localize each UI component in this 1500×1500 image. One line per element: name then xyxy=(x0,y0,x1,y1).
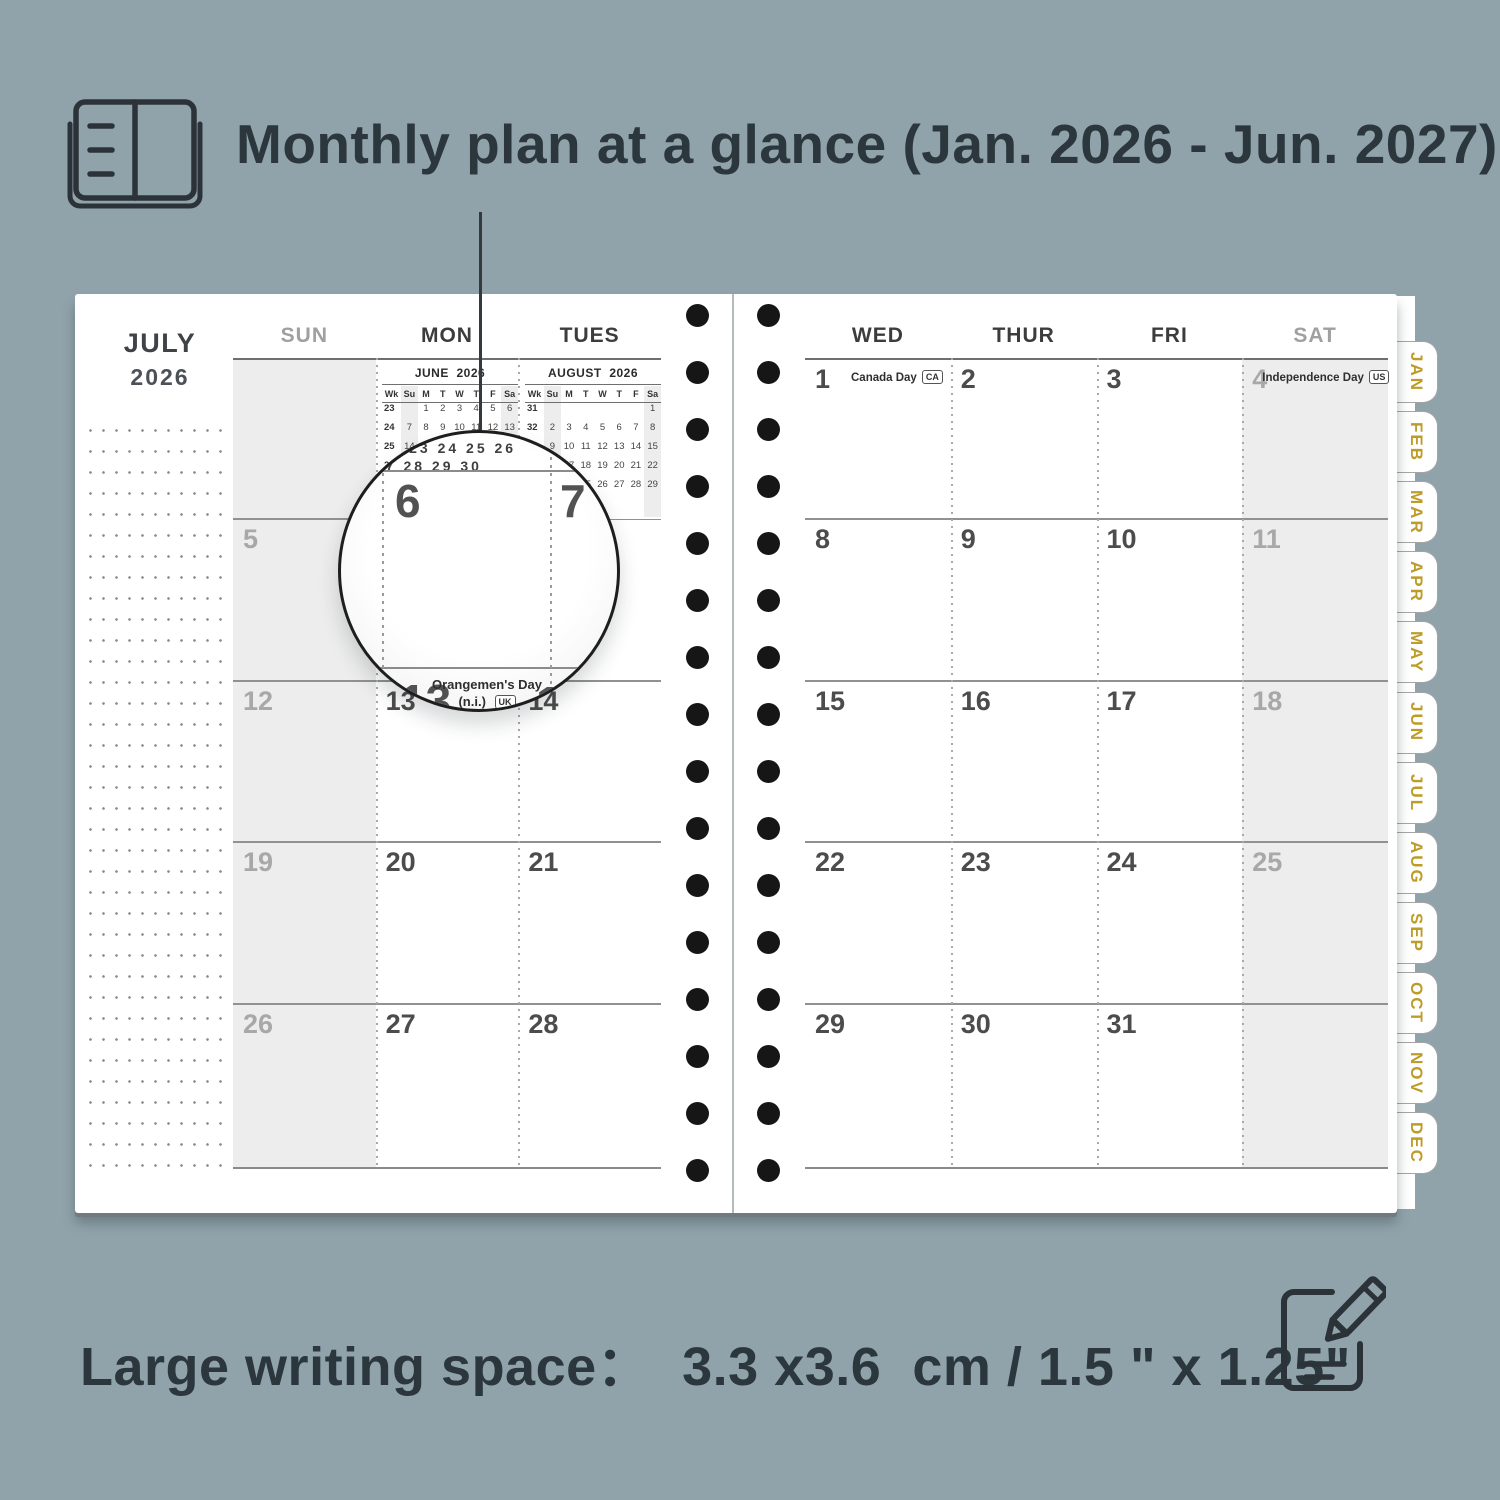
mini-col-header: Sa xyxy=(501,389,518,399)
day-cell-28: 28 xyxy=(528,1011,558,1038)
mini-col-header: F xyxy=(628,389,645,399)
mini-day: 26 xyxy=(594,479,611,490)
mini-week-number: 24 xyxy=(382,422,401,433)
mini-day: 13 xyxy=(611,441,628,452)
holiday-label: Independence DayUS xyxy=(1262,370,1389,384)
month-tab-nov: NOV xyxy=(1395,1042,1438,1104)
mini-line xyxy=(525,384,661,385)
mini-day: 10 xyxy=(561,441,578,452)
magnified-column-divider xyxy=(382,433,384,712)
binding-hole xyxy=(757,1102,780,1125)
day-cell-12: 12 xyxy=(243,688,273,715)
day-cell-27: 27 xyxy=(386,1011,416,1038)
grid-row-line xyxy=(805,1167,1388,1169)
day-cell-8: 8 xyxy=(815,526,830,553)
magnified-column-divider xyxy=(550,433,552,712)
day-cell-22: 22 xyxy=(815,849,845,876)
mini-day: 2 xyxy=(434,403,451,414)
day-header-mon: MON xyxy=(376,324,519,348)
binding-hole xyxy=(757,931,780,954)
mini-col-header: M xyxy=(418,389,435,399)
holiday-name: Orangemen's Day xyxy=(432,677,542,692)
mini-day: 8 xyxy=(418,422,435,433)
day-cell-11: 11 xyxy=(1252,526,1281,553)
month-tab-jul: JUL xyxy=(1395,762,1438,824)
mini-col-header: Sa xyxy=(644,389,661,399)
month-tab-label: OCT xyxy=(1395,973,1437,1033)
grid-row-line xyxy=(233,358,661,360)
planner-product-image: Monthly plan at a glance (Jan. 2026 - Ju… xyxy=(0,0,1500,1500)
binding-hole xyxy=(757,1159,780,1182)
day-cell-24: 24 xyxy=(1107,849,1137,876)
mini-day: 22 xyxy=(644,460,661,471)
mini-line xyxy=(382,384,518,385)
grid-column-divider xyxy=(951,358,953,1167)
month-tab-label: JAN xyxy=(1395,342,1437,402)
mini-col-header: Su xyxy=(401,389,418,399)
mini-day: 12 xyxy=(594,441,611,452)
day-cell-1: 1 xyxy=(815,366,830,393)
grid-column-divider xyxy=(1097,358,1099,1167)
binding-hole xyxy=(686,532,709,555)
binding-hole xyxy=(757,475,780,498)
binding-hole xyxy=(757,646,780,669)
day-cell-26: 26 xyxy=(243,1011,273,1038)
binding-hole xyxy=(757,361,780,384)
binding-hole xyxy=(686,760,709,783)
writing-pencil-icon xyxy=(1268,1268,1386,1400)
day-cell-2: 2 xyxy=(961,366,976,393)
mini-col-header: Wk xyxy=(525,389,544,399)
mini-col-header: T xyxy=(468,389,485,399)
holiday-name: Independence Day xyxy=(1262,372,1364,384)
binding-hole xyxy=(757,589,780,612)
mini-col-header: T xyxy=(434,389,451,399)
month-tab-aug: AUG xyxy=(1395,832,1438,894)
mini-col-header: M xyxy=(561,389,578,399)
binding-hole xyxy=(686,646,709,669)
mini-day: 2 xyxy=(544,422,561,433)
mini-day: 15 xyxy=(644,441,661,452)
month-tab-may: MAY xyxy=(1395,621,1438,683)
day-header-wed: WED xyxy=(805,324,951,348)
binding-hole xyxy=(757,703,780,726)
binding-hole xyxy=(757,817,780,840)
mini-day: 4 xyxy=(577,422,594,433)
binding-hole xyxy=(757,988,780,1011)
holiday-label: Canada DayCA xyxy=(851,370,943,384)
month-tab-label: DEC xyxy=(1395,1113,1437,1173)
day-header-sat: SAT xyxy=(1242,324,1388,348)
binding-hole xyxy=(686,1045,709,1068)
month-tab-jan: JAN xyxy=(1395,341,1438,403)
day-cell-19: 19 xyxy=(243,849,273,876)
mini-day: 5 xyxy=(594,422,611,433)
day-cell-25: 25 xyxy=(1252,849,1282,876)
mini-calendar-title: AUGUST 2026 xyxy=(525,366,661,380)
mini-day: 29 xyxy=(644,479,661,490)
mini-line xyxy=(525,402,661,403)
year-title: 2026 xyxy=(85,364,235,391)
country-badge: US xyxy=(1369,370,1390,384)
binding-hole xyxy=(686,589,709,612)
month-tab-label: APR xyxy=(1395,552,1437,612)
binding-hole xyxy=(686,475,709,498)
weekend-column-shade xyxy=(233,358,376,1167)
binding-hole xyxy=(686,931,709,954)
month-tab-jun: JUN xyxy=(1395,692,1438,754)
binding-hole xyxy=(686,1159,709,1182)
day-cell-20: 20 xyxy=(386,849,416,876)
center-fold-line xyxy=(732,294,734,1213)
binding-hole xyxy=(686,418,709,441)
binding-hole xyxy=(686,874,709,897)
mini-col-header: T xyxy=(611,389,628,399)
month-tab-oct: OCT xyxy=(1395,972,1438,1034)
mini-day: 5 xyxy=(485,403,502,414)
binding-hole xyxy=(757,1045,780,1068)
callout-leader-line xyxy=(479,212,482,436)
day-cell-16: 16 xyxy=(961,688,991,715)
day-cell-3: 3 xyxy=(1107,366,1122,393)
mini-col-header: Wk xyxy=(382,389,401,399)
mini-col-header: F xyxy=(485,389,502,399)
mini-day: 9 xyxy=(434,422,451,433)
binding-hole xyxy=(686,361,709,384)
month-tab-label: MAY xyxy=(1395,622,1437,682)
day-cell-18: 18 xyxy=(1252,688,1282,715)
mini-day: 3 xyxy=(561,422,578,433)
spread: JULY 2026 SUNMONTUES56712131419202126272… xyxy=(75,294,1397,1213)
binding-hole xyxy=(686,703,709,726)
grid-row-line xyxy=(233,1003,661,1005)
mini-col-header: T xyxy=(577,389,594,399)
binding-hole xyxy=(757,760,780,783)
page-title: Monthly plan at a glance (Jan. 2026 - Ju… xyxy=(236,112,1498,176)
month-tab-label: JUN xyxy=(1395,693,1437,753)
month-tab-label: MAR xyxy=(1395,482,1437,542)
mini-week-number: 31 xyxy=(525,403,544,414)
binding-hole xyxy=(686,304,709,327)
magnified-day-7: 7 xyxy=(560,478,586,524)
grid-row-line xyxy=(233,1167,661,1169)
magnified-day-6: 6 xyxy=(395,478,421,524)
day-header-thur: THUR xyxy=(951,324,1097,348)
day-header-fri: FRI xyxy=(1097,324,1243,348)
mini-col-header: Su xyxy=(544,389,561,399)
mini-col-header: W xyxy=(594,389,611,399)
month-tab-label: AUG xyxy=(1395,833,1437,893)
day-header-sun: SUN xyxy=(233,324,376,348)
mini-day: 8 xyxy=(644,422,661,433)
binding-hole xyxy=(757,532,780,555)
mini-day: 27 xyxy=(611,479,628,490)
day-cell-30: 30 xyxy=(961,1011,991,1038)
month-title: JULY xyxy=(85,328,235,359)
month-tab-label: SEP xyxy=(1395,903,1437,963)
weekend-column-shade xyxy=(1242,358,1388,1167)
mini-day: 11 xyxy=(577,441,594,452)
mini-day: 1 xyxy=(644,403,661,414)
open-planner-icon xyxy=(64,94,206,212)
binding-hole xyxy=(757,874,780,897)
mini-calendar-title: JUNE 2026 xyxy=(382,366,518,380)
month-tab-label: JUL xyxy=(1395,763,1437,823)
mini-day: 3 xyxy=(451,403,468,414)
writing-space-caption: Large writing space： 3.3 x3.6 cm / 1.5 "… xyxy=(80,1322,1351,1401)
notes-dot-grid xyxy=(84,420,227,1168)
mini-day: 14 xyxy=(628,441,645,452)
mini-day: 7 xyxy=(401,422,418,433)
month-tab-feb: FEB xyxy=(1395,411,1438,473)
mini-day: 28 xyxy=(628,479,645,490)
binding-hole xyxy=(757,418,780,441)
month-tab-mar: MAR xyxy=(1395,481,1438,543)
month-tab-dec: DEC xyxy=(1395,1112,1438,1174)
mini-day: 7 xyxy=(628,422,645,433)
country-badge: CA xyxy=(922,370,943,384)
day-cell-10: 10 xyxy=(1107,526,1137,553)
binding-hole xyxy=(757,304,780,327)
day-header-tues: TUES xyxy=(518,324,661,348)
mini-day: 4 xyxy=(468,403,485,414)
binding-hole xyxy=(686,1102,709,1125)
country-badge: UK xyxy=(495,695,516,709)
day-cell-23: 23 xyxy=(961,849,991,876)
holiday-name: Canada Day xyxy=(851,372,917,384)
day-cell-21: 21 xyxy=(528,849,558,876)
mini-day: 1 xyxy=(418,403,435,414)
magnified-holiday-label: Orangemen's Day (n.i.) UK xyxy=(422,676,552,710)
month-tab-label: FEB xyxy=(1395,412,1437,472)
grid-column-divider xyxy=(1242,358,1244,1167)
mini-week-number: 23 xyxy=(382,403,401,414)
day-cell-29: 29 xyxy=(815,1011,845,1038)
mini-day: 6 xyxy=(611,422,628,433)
mini-day: 6 xyxy=(501,403,518,414)
day-cell-9: 9 xyxy=(961,526,976,553)
day-cell-15: 15 xyxy=(815,688,845,715)
month-tab-sep: SEP xyxy=(1395,902,1438,964)
binding-hole xyxy=(686,988,709,1011)
mini-day: 21 xyxy=(628,460,645,471)
binding-hole xyxy=(686,817,709,840)
day-cell-17: 17 xyxy=(1107,688,1137,715)
day-cell-5: 5 xyxy=(243,526,258,553)
magnifier-circle: 1 2 23 24 25 26 27 28 29 30 6 7 13 14 Or… xyxy=(338,430,620,712)
grid-row-line xyxy=(233,841,661,843)
mini-col-header: W xyxy=(451,389,468,399)
holiday-observance: (n.i.) xyxy=(458,694,485,709)
month-tab-apr: APR xyxy=(1395,551,1438,613)
month-tab-label: NOV xyxy=(1395,1043,1437,1103)
mini-week-number: 32 xyxy=(525,422,544,433)
day-cell-31: 31 xyxy=(1107,1011,1137,1038)
